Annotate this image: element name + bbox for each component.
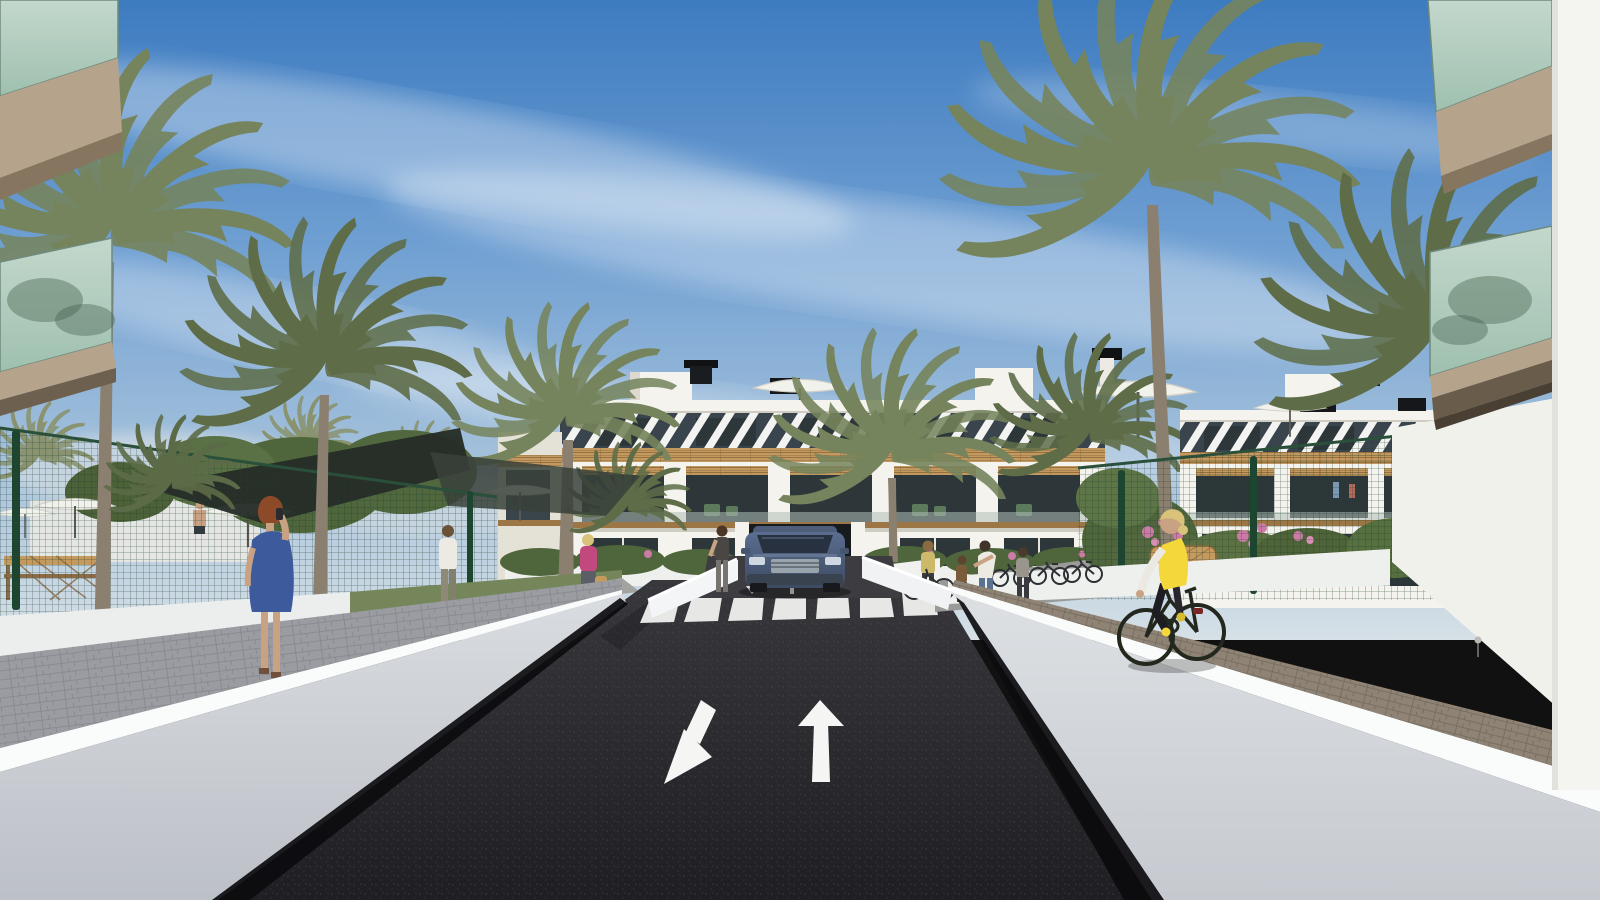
mirror <box>840 548 849 554</box>
blue-suv <box>739 526 851 599</box>
leg <box>1176 586 1180 614</box>
saddle-bag <box>1193 608 1203 614</box>
wheel <box>750 583 767 592</box>
shadow <box>1128 659 1216 673</box>
blue-dress <box>249 531 294 612</box>
corner-wall <box>1552 0 1600 790</box>
shoe <box>1162 628 1171 637</box>
headlight <box>749 557 765 565</box>
wall-light-fixture <box>1475 637 1482 658</box>
architectural-render <box>0 0 1600 900</box>
wheel <box>823 583 840 592</box>
roof-vent <box>1398 398 1426 411</box>
mirror <box>741 548 750 554</box>
hand <box>1136 590 1144 598</box>
shoe <box>1177 613 1186 622</box>
headlight <box>825 557 841 565</box>
right-foreground-balconies <box>1428 0 1600 790</box>
yellow-vest <box>1159 538 1188 590</box>
render-scene <box>0 0 1600 900</box>
grille <box>771 559 819 573</box>
phone <box>276 508 283 520</box>
